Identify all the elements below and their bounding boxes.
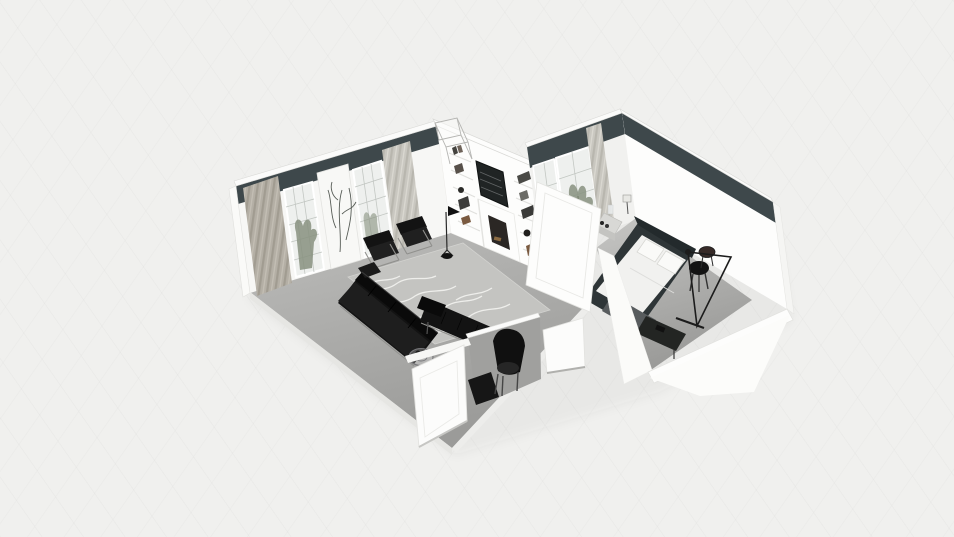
scene-svg[interactable] <box>0 0 954 537</box>
lamp-head <box>686 250 691 255</box>
lamp-base <box>442 253 453 259</box>
bedroom[interactable] <box>525 109 794 396</box>
floorplan-3d-viewport[interactable] <box>0 0 954 537</box>
glass-carafe <box>608 205 613 214</box>
table-lamp-shade <box>623 195 631 202</box>
seat <box>497 362 519 374</box>
bottle <box>600 221 604 225</box>
bottle <box>605 224 609 228</box>
